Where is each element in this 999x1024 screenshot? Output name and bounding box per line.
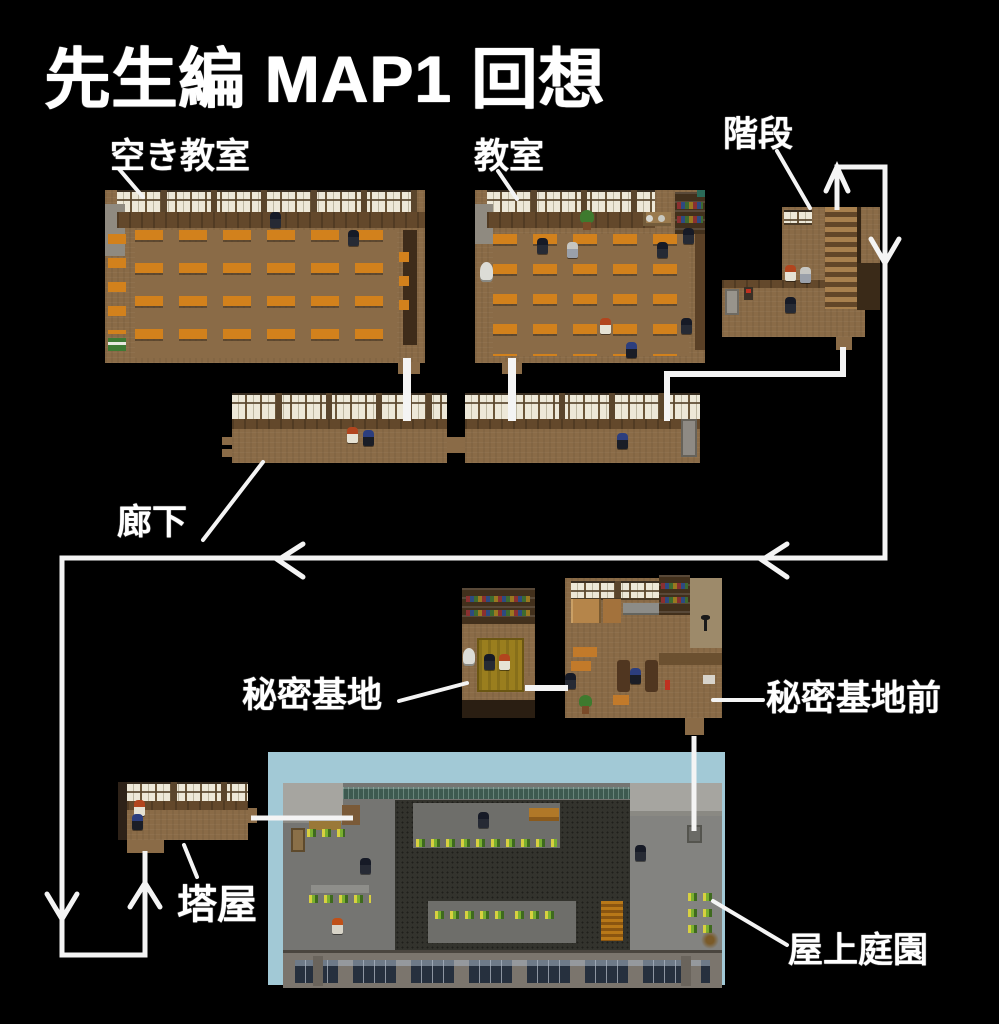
leader-secret-base: [399, 683, 467, 701]
label-stairs: 階段: [723, 106, 793, 157]
label-classroom: 教室: [474, 128, 544, 179]
label-corridor: 廊下: [117, 494, 187, 545]
label-empty-classroom: 空き教室: [110, 128, 250, 179]
page-title: 先生編 MAP1 回想: [44, 26, 605, 122]
label-secret-base: 秘密基地: [242, 667, 382, 718]
leader-stairs: [777, 151, 810, 208]
label-rooftop-garden: 屋上庭園: [788, 922, 928, 973]
map-flow-diagram: 先生編 MAP1 回想 空き教室 教室 階段 廊下 秘密基地 秘密基地前 塔屋 …: [0, 0, 999, 1024]
leader-rooftop-garden: [713, 901, 787, 945]
connector-stairs-corridor: [667, 347, 843, 421]
label-secret-base-front: 秘密基地前: [766, 670, 941, 721]
label-tower-room: 塔屋: [177, 872, 257, 930]
leader-corridor: [203, 462, 263, 540]
